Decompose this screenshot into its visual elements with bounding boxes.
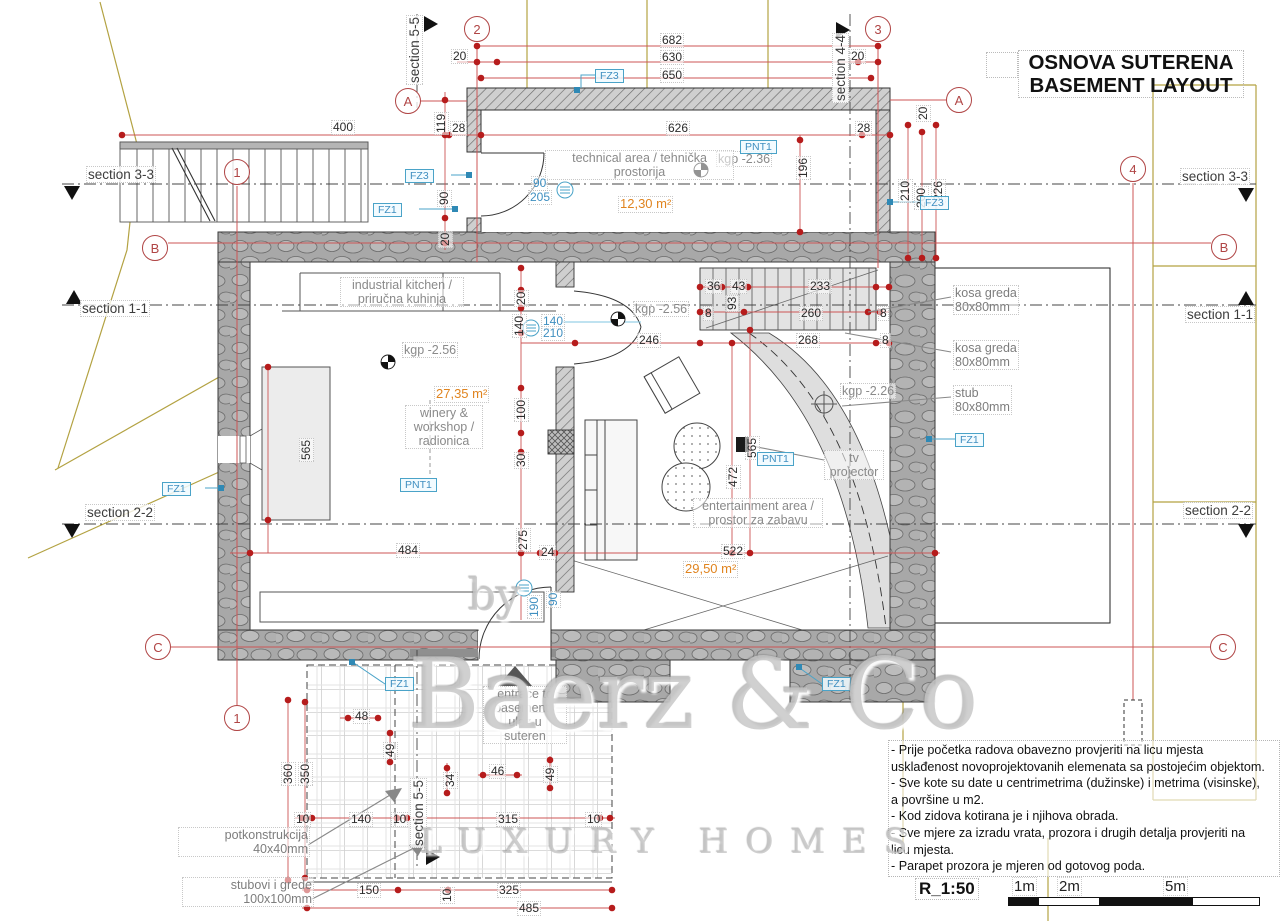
dim-label: 20 [916,105,931,122]
dim-label: 24 [539,545,556,560]
title-line-croatian: OSNOVA SUTERENA [1019,51,1243,74]
dim-label: 196 [796,156,811,180]
dim-label: 93 [725,295,740,312]
note-line: a površine u m2. [891,792,1277,809]
note-line: - Parapet prozora je mjeren od gotovog p… [891,858,1277,875]
scale-bar [1008,897,1260,906]
dim-label: 150 [357,883,381,898]
grid-bubble-a: A [395,88,421,114]
dim-label: 233 [808,279,832,294]
grid-bubble-a: A [946,87,972,113]
dim-label: 8 [880,333,891,348]
dim-label: 28 [855,121,872,136]
dim-label: 210 [898,179,913,203]
dim-label: section 1-1 [1185,306,1255,323]
dim-label: 20 [514,290,529,307]
dim-label: 360 [281,762,296,786]
notes-block: - Prije početka radova obavezno provjeri… [888,740,1280,877]
tag-pnt1: PNT1 [740,140,777,154]
dim-label: 325 [497,883,521,898]
dim-label: 400 [331,120,355,135]
dim-label: 485 [517,901,541,916]
dim-label: potkonstrukcija 40x40mm [178,827,310,857]
dim-label: 49 [543,766,558,783]
dim-label: 119 [434,112,449,135]
note-line: usklađenost novoprojektovanih elemenata … [891,759,1277,776]
dim-label: 100 [514,398,529,422]
dim-label: 565 [299,438,314,462]
dim-label: 27,35 m² [434,386,489,403]
dim-label: 315 [496,812,520,827]
dim-label: 30 [514,452,529,469]
dim-label: section 1-1 [80,300,150,317]
dim-label: 472 [726,465,741,489]
grid-bubble-3: 3 [865,16,891,42]
dim-label: 650 [660,68,684,83]
grid-bubble-2: 2 [464,16,490,42]
note-line: - Sve kote su date u centrimetrima (duži… [891,775,1277,792]
tag-fz3: FZ3 [405,169,434,183]
dim-label: 20 [438,231,453,248]
dim-label: 275 [516,528,531,552]
dim-label: 205 [528,190,552,205]
dim-label: section 3-3 [1180,168,1250,185]
dim-label: 10 [585,812,602,827]
dim-label: section 2-2 [1183,502,1253,519]
scale-label: R_1:50 [915,878,979,900]
tv-projector-label: tv projector [824,450,884,480]
tag-fz1: FZ1 [385,677,414,691]
room-label-kitchen: industrial kitchen / priručna kuhinja [340,277,464,307]
dim-label: 522 [721,544,745,559]
dim-label: 8 [703,306,714,321]
dim-label: 10 [294,812,311,827]
dim-label: 140 [512,314,527,338]
tag-fz3: FZ3 [595,69,624,83]
dim-label: kgp -2.56 [633,301,689,317]
tag-fz1: FZ1 [955,433,984,447]
dim-label: 34 [443,772,458,789]
dim-label: 260 [799,306,823,321]
dim-label: 10 [440,887,455,904]
dim-label: 20 [849,49,866,64]
dim-label: kgp -2.56 [402,342,458,358]
grid-bubble-c: C [145,634,171,660]
note-line: licu mjesta. [891,842,1277,859]
dim-label: 630 [660,50,684,65]
tag-fz1: FZ1 [162,482,191,496]
dim-label: stub 80x80mm [953,385,1012,415]
drawing-title: OSNOVA SUTERENA BASEMENT LAYOUT [1018,50,1244,98]
dim-label: 28 [450,121,467,136]
scale-mark-1m: 1m [1012,877,1037,896]
dim-label: kosa greda 80x80mm [953,340,1019,370]
room-label-entertainment: entertainment area / prostor za zabavu [693,498,823,528]
dim-label: 29,50 m² [683,561,738,578]
dim-label: 350 [298,762,313,786]
dim-label: 90 [546,591,561,608]
dim-label: 140 [349,812,373,827]
dim-label: 190 [527,595,542,619]
grid-bubble-b: B [142,235,168,261]
dim-label: 626 [666,121,690,136]
dim-label: 46 [489,764,506,779]
room-label-technical: technical area / tehnička prostorija [545,150,734,180]
basement-floor-plan: OSNOVA SUTERENA BASEMENT LAYOUT - Prije … [0,0,1280,921]
dim-label: 682 [660,33,684,48]
dim-label: section 4-4 [832,33,849,103]
dim-label: 48 [353,709,370,724]
dim-label: 210 [541,326,565,341]
scale-mark-2m: 2m [1057,877,1082,896]
dim-label: 20 [451,49,468,64]
dim-label: kosa greda 80x80mm [953,285,1019,315]
dim-label: section 2-2 [85,504,155,521]
dim-label: section 5-5 [406,15,423,85]
note-line: - Prije početka radova obavezno provjeri… [891,742,1277,759]
room-label-winery: winery & workshop / radionica [405,405,483,449]
labels-layer: OSNOVA SUTERENA BASEMENT LAYOUT - Prije … [0,0,1280,921]
entrance-label: entrace to basement / ulaz u suteren [483,686,567,744]
note-line: - Kod zidova kotirana je i njihova obrad… [891,808,1277,825]
dim-label: 12,30 m² [618,196,673,213]
note-line: - Sve mjere za izradu vrata, prozora i d… [891,825,1277,842]
dim-label: 49 [383,742,398,759]
dim-label: 43 [730,279,747,294]
dim-label: 8 [878,306,889,321]
dim-label: 10 [391,812,408,827]
grid-bubble-1: 1 [224,705,250,731]
scale-mark-5m: 5m [1163,877,1188,896]
tag-pnt1: PNT1 [757,452,794,466]
grid-bubble-b: B [1211,234,1237,260]
dim-label: stubovi i grede 100x100mm [182,877,314,907]
tag-fz3: FZ3 [920,196,949,210]
title-line-english: BASEMENT LAYOUT [1019,74,1243,97]
grid-bubble-c: C [1210,634,1236,660]
tag-fz1: FZ1 [822,677,851,691]
dim-label: 484 [396,543,420,558]
tag-pnt1: PNT1 [400,478,437,492]
title-side-box [986,52,1018,78]
dim-label: kgp -2.26 [840,383,896,399]
dim-label: 90 [437,190,452,207]
dim-label: 268 [796,333,820,348]
grid-bubble-4: 4 [1120,156,1146,182]
dim-label: section 5-5 [410,778,427,848]
dim-label: 36 [705,279,722,294]
dim-label: 246 [637,333,661,348]
dim-label: section 3-3 [86,166,156,183]
grid-bubble-1: 1 [224,159,250,185]
tag-fz1: FZ1 [373,203,402,217]
